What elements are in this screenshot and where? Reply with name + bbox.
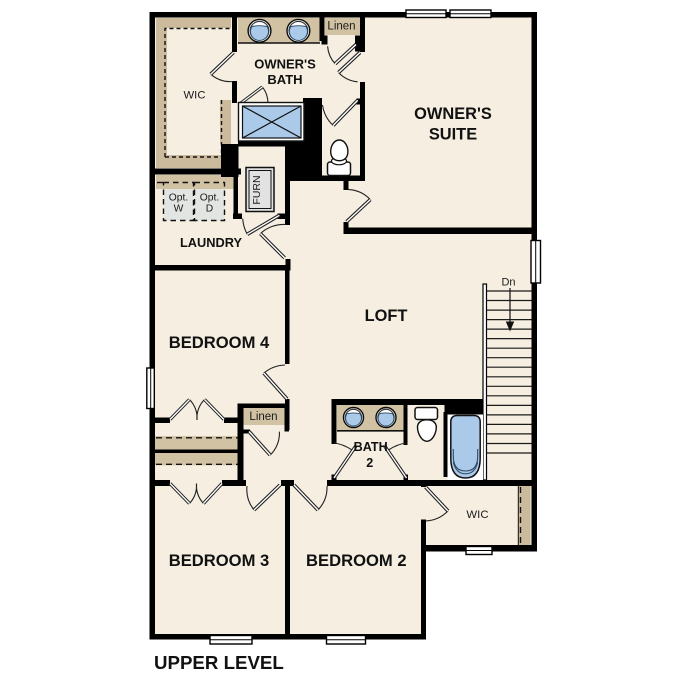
svg-text:BEDROOM 3: BEDROOM 3 (169, 551, 270, 570)
svg-text:LAUNDRY: LAUNDRY (180, 235, 243, 250)
svg-text:OWNER'S: OWNER'S (254, 57, 316, 72)
svg-text:Linen: Linen (327, 21, 355, 33)
svg-text:W: W (174, 204, 184, 215)
svg-text:SUITE: SUITE (429, 126, 477, 144)
svg-text:BEDROOM 2: BEDROOM 2 (306, 551, 407, 570)
svg-text:OWNER'S: OWNER'S (414, 105, 492, 123)
svg-text:Dn: Dn (501, 277, 515, 289)
svg-text:2: 2 (366, 456, 373, 470)
svg-text:LOFT: LOFT (365, 307, 408, 325)
svg-text:BATH: BATH (267, 72, 302, 87)
svg-text:UPPER LEVEL: UPPER LEVEL (154, 652, 284, 673)
svg-text:BEDROOM 4: BEDROOM 4 (169, 333, 270, 352)
svg-text:Opt.: Opt. (169, 193, 188, 204)
svg-text:Linen: Linen (249, 411, 277, 423)
svg-text:BATH: BATH (354, 440, 388, 454)
svg-text:FURN: FURN (251, 175, 263, 204)
svg-text:Opt.: Opt. (200, 193, 219, 204)
svg-text:WIC: WIC (184, 90, 206, 102)
svg-text:D: D (206, 204, 213, 215)
svg-text:WIC: WIC (466, 509, 488, 521)
